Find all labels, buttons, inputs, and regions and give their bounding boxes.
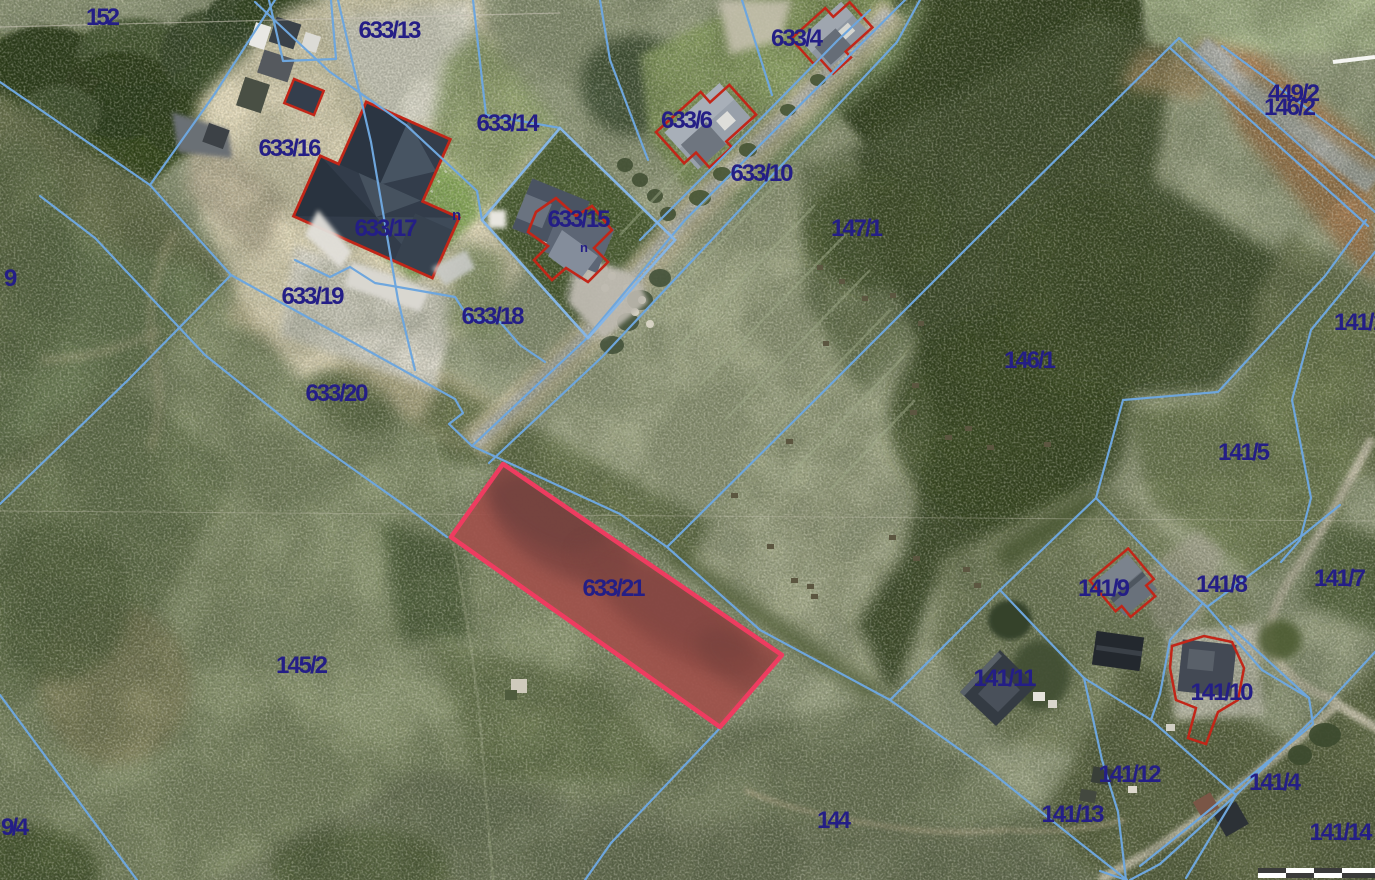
svg-text:145/2: 145/2 [276,652,328,679]
svg-text:141/13: 141/13 [1042,801,1105,828]
svg-text:152: 152 [86,4,120,31]
svg-text:9: 9 [4,265,17,292]
svg-text:n: n [580,240,588,255]
svg-text:144: 144 [817,807,852,834]
svg-text:141/1: 141/1 [1334,309,1375,336]
svg-text:n: n [452,207,461,224]
svg-text:141/10: 141/10 [1191,679,1254,706]
svg-text:141/14: 141/14 [1310,819,1374,846]
svg-text:141/5: 141/5 [1218,439,1270,466]
svg-text:147/1: 147/1 [831,215,883,242]
svg-text:633/21: 633/21 [583,575,646,602]
svg-text:633/13: 633/13 [359,17,422,44]
svg-text:141/8: 141/8 [1196,571,1248,598]
svg-text:141/11: 141/11 [974,665,1037,692]
svg-text:633/15: 633/15 [548,206,611,233]
svg-text:141/7: 141/7 [1314,565,1366,592]
svg-text:141/12: 141/12 [1099,761,1162,788]
svg-text:146/1: 146/1 [1004,347,1056,374]
svg-text:146/2: 146/2 [1264,94,1316,121]
svg-text:633/19: 633/19 [282,283,345,310]
svg-text:633/16: 633/16 [259,135,322,162]
svg-text:141/4: 141/4 [1249,769,1302,796]
svg-text:633/17: 633/17 [355,215,418,242]
svg-text:141/9: 141/9 [1078,575,1130,602]
svg-text:633/20: 633/20 [306,380,369,407]
svg-text:633/4: 633/4 [771,25,824,52]
svg-text:633/10: 633/10 [731,160,794,187]
svg-text:633/18: 633/18 [462,303,525,330]
svg-text:633/14: 633/14 [477,110,541,137]
svg-text:633/6: 633/6 [661,107,713,134]
svg-text:9/4: 9/4 [1,814,30,841]
